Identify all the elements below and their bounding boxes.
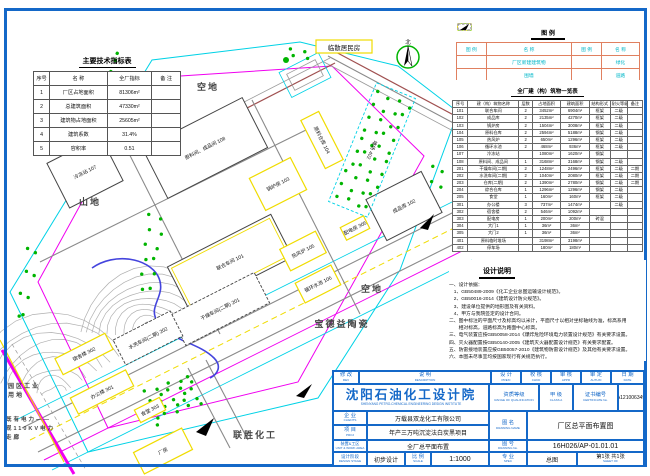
table-cell: 仓库(二期) (468, 180, 519, 187)
tree-dot (439, 185, 443, 189)
table-cell: 2 (519, 129, 532, 136)
table-cell: 1 (519, 158, 532, 165)
table-cell: 原料仓库 (468, 129, 519, 136)
gate-arrow-icon (196, 418, 214, 436)
table-cell: 二期 (627, 172, 642, 179)
checker-label: 校 核CHKD (521, 371, 551, 384)
table-cell: 3198m² (532, 237, 561, 244)
table-row: 205食堂1160m²160m²框架二级 (453, 194, 643, 201)
tree-dot (391, 138, 395, 142)
table-row: 104原料仓库22594m²5188m²钢架二级 (453, 129, 643, 136)
tree-dot (171, 398, 175, 402)
table-cell: 105 (453, 136, 468, 143)
tree-dot (397, 99, 401, 103)
table-cell (610, 151, 627, 158)
table-row: 402停车场180m²180m² (453, 244, 643, 251)
design-note-line: 1、GB50489-2009《化工企业总图运输设计规范》。 (449, 289, 646, 296)
table-cell: 1 (519, 194, 532, 201)
table-cell: 框架 (589, 115, 610, 122)
table-cell: 2 (519, 165, 532, 172)
building: 水洗车间(二期) 202 (113, 311, 183, 365)
rev-label: 修 改REV (333, 371, 359, 384)
table-cell: 2135m² (532, 115, 561, 122)
tree-dot (141, 287, 145, 291)
table-row: 厂区新建建筑物绿化 (457, 56, 640, 69)
tree-dot (155, 387, 159, 391)
scale-label: 比 例SCALE (405, 452, 431, 466)
table-cell (152, 128, 181, 142)
tree-dot (360, 136, 364, 140)
indicators-table: 序号名 称全厂指标备 注1厂区占地面积81306m²2总建筑面积47330m²3… (33, 71, 181, 156)
certificate-number: A121006349 (618, 384, 644, 411)
table-cell (627, 230, 642, 237)
unit-label: 装置&工区UNIT & WORK AREA (333, 440, 367, 452)
table-cell: 468m² (532, 144, 561, 151)
design-note-line: 六、本图未尽事宜均按国家现行有关规范执行。 (449, 354, 646, 361)
table-cell (610, 216, 627, 223)
table-cell: 4270m² (561, 115, 590, 122)
area-label: 联胜化工 (233, 429, 277, 440)
speciality-value: 总图 (527, 452, 577, 466)
table-cell: 160m² (561, 194, 590, 201)
tree-dot (303, 50, 306, 53)
table-cell: 1 (519, 230, 532, 237)
table-cell: 101 (453, 108, 468, 115)
tree-dot (374, 130, 378, 134)
table-cell: 框架 (589, 136, 610, 143)
table-cell (627, 194, 642, 201)
table-cell: 302 (453, 208, 468, 215)
table-cell: 3168m² (532, 158, 561, 165)
table-cell: 名 称 (50, 72, 108, 86)
tree-dot (18, 291, 22, 295)
gate-arrow-icon (296, 384, 312, 398)
table-cell: 102 (453, 115, 468, 122)
legend-header: 图 例 (457, 43, 487, 56)
drawing-number-value: 16H026/AP-01.01.01 (527, 440, 644, 452)
table-cell: 原料间、成品间 (468, 158, 519, 165)
tree-dot (283, 57, 289, 63)
drawing-sheet: 冷冻站 107原料间、成品间 108锅炉房 103原料仓库 104成品库 102… (0, 0, 650, 476)
table-cell: 2 (519, 208, 532, 215)
tree-dot (148, 286, 152, 290)
tree-dot (371, 102, 375, 106)
table-cell: 框架 (589, 108, 610, 115)
sheet-number: 第1张 共1张SHEET OF (577, 452, 644, 466)
table-cell: 2080m² (561, 172, 590, 179)
tree-cluster (136, 212, 165, 292)
table-cell: 0.51 (107, 142, 152, 156)
table-cell (610, 230, 627, 237)
tree-dot (358, 163, 362, 167)
table-cell: 103 (453, 122, 468, 129)
table-cell: 204 (453, 187, 468, 194)
table-cell: 热风炉 (468, 136, 519, 143)
table-cell: 钢架 (589, 180, 610, 187)
tree-dot (186, 403, 190, 407)
table-cell: 干燥车间(二期) (468, 165, 519, 172)
table-row: 序号名 称全厂指标备 注 (34, 72, 181, 86)
table-cell: 107 (453, 151, 468, 158)
table-cell (589, 201, 610, 208)
tree-dot (362, 128, 366, 132)
table-cell: 水洗车间(二期) (468, 172, 519, 179)
tree-dot (159, 392, 163, 396)
table-cell: 二级 (610, 158, 627, 165)
table-cell: 大门2 (468, 230, 519, 237)
table-cell: 钢架 (589, 187, 610, 194)
table-cell: 936m² (561, 144, 590, 151)
table-cell (627, 129, 642, 136)
table-cell: 容积率 (50, 142, 108, 156)
table-cell: 二级 (610, 172, 627, 179)
table-cell (627, 158, 642, 165)
table-cell (152, 114, 181, 128)
table-cell: 36m² (561, 230, 590, 237)
north-arrow-icon: 北 (397, 38, 419, 68)
tree-dot (147, 212, 151, 216)
table-row: 4建筑系数31.4% (34, 128, 181, 142)
design-notes-title: 设计说明 (479, 266, 515, 279)
contour-line (42, 385, 67, 394)
certificate-label: 证书编号CERTIFICATE No. (573, 384, 618, 411)
building-label: 堆场 402 (365, 139, 379, 160)
table-cell: 钢架 (589, 129, 610, 136)
table-cell (152, 142, 181, 156)
project-label: 项 目PROJ (333, 425, 367, 440)
tree-dot (357, 204, 361, 208)
tree-dot (381, 109, 385, 113)
table-cell: 202 (453, 172, 468, 179)
table-row: 303配电房1200m²200m²砖混 (453, 216, 643, 223)
table-cell: 二级 (610, 194, 627, 201)
designer-label: 设 计PRE'D (491, 371, 521, 384)
table-cell: 200m² (532, 216, 561, 223)
tree-dot (362, 150, 366, 154)
table-row: 204综合仓库11296m²1296m²钢架二级 (453, 187, 643, 194)
legend-header: 图 例 (572, 43, 602, 56)
tree-dot (182, 391, 186, 395)
area-label: 园区工业 (8, 382, 40, 390)
building: 循环水池 106 (295, 265, 341, 303)
table-row: 201干燥车间(二期)21248m²2496m²框架二级二期 (453, 165, 643, 172)
table-cell: 二级 (610, 136, 627, 143)
tree-dot (349, 188, 353, 192)
tree-dot (32, 274, 36, 278)
table-cell: 办公楼 (468, 201, 519, 208)
new-building-icon (457, 56, 487, 69)
table-cell: 2 (519, 122, 532, 129)
table-cell: 1474m² (561, 201, 590, 208)
table-cell: 2496m² (561, 165, 590, 172)
tree-dot (144, 258, 148, 262)
table-cell: 序号 (453, 101, 468, 108)
tree-dot (361, 191, 365, 195)
tree-dot (380, 172, 384, 176)
tree-dot (24, 269, 28, 273)
tree-dot (26, 246, 30, 250)
tree-dot (381, 131, 385, 135)
indicators-table-block: 主要技术指标表 序号名 称全厂指标备 注1厂区占地面积81306m²2总建筑面积… (33, 50, 181, 156)
legend-name: 厂区新建建筑物 (486, 56, 572, 69)
institute-name: 沈阳石油化工设计院SHENYANG PETRO-CHEMICAL ENGINEE… (333, 384, 489, 411)
table-cell (519, 151, 532, 158)
table-cell: 160m² (532, 194, 561, 201)
date-label: 日 期DATE (611, 371, 644, 384)
unit-value: 全厂总平面布置 (367, 440, 489, 452)
table-cell: 二级 (610, 122, 627, 129)
tree-dot (155, 247, 159, 251)
table-cell: 食堂 (468, 194, 519, 201)
table-cell: 36m² (532, 230, 561, 237)
table-cell: 3 (519, 201, 532, 208)
approver-label: 审 核APPR (551, 371, 581, 384)
table-cell (610, 208, 627, 215)
design-note-line: 相对标高，道路标高为路面中心标高。 (449, 325, 646, 332)
area-label: 既有电力—— (6, 415, 51, 423)
drawing-name-label: 图 名DRAWING NAME (489, 411, 527, 440)
tree-dot (339, 181, 343, 185)
table-row: 3建筑物占地面积25605m² (34, 114, 181, 128)
table-cell (627, 108, 642, 115)
table-cell (589, 208, 610, 215)
tree-dot (346, 197, 350, 201)
table-cell: 备 注 (152, 72, 181, 86)
table-cell: 200m² (561, 216, 590, 223)
table-cell: 钢架 (589, 158, 610, 165)
design-note-line: 一、设计依据： (449, 282, 646, 289)
table-cell: 框架 (589, 194, 610, 201)
table-cell: 6904m² (561, 108, 590, 115)
authorizer-label: 审 定AUTH'D (581, 371, 611, 384)
table-cell: 二级 (610, 108, 627, 115)
table-cell: 框架 (589, 144, 610, 151)
tree-dot (292, 54, 295, 57)
table-cell: 全厂指标 (107, 72, 152, 86)
table-row: 304大门1136m²36m² (453, 223, 643, 230)
table-row: 图 例名 称图 例名 称 (457, 43, 640, 56)
building: 原料仓库 104 (301, 111, 343, 168)
table-cell: 2 (519, 108, 532, 115)
table-row: 1厂区占地面积81306m² (34, 86, 181, 100)
tree-dot (26, 296, 30, 300)
table-cell: 建筑面积 (561, 101, 590, 108)
table-cell: 1 (519, 187, 532, 194)
table-row: 301办公楼3737m²1474m²二级 (453, 201, 643, 208)
table-cell: 2 (519, 136, 532, 143)
table-row: 5容积率0.51 (34, 142, 181, 156)
tree-dot (355, 149, 359, 153)
design-note-line: 四、灭火器配置按GB50140-2005《建筑灭火器配置设计规范》有关要求配置。 (449, 340, 646, 347)
table-cell: 2 (519, 115, 532, 122)
tree-dot (354, 176, 358, 180)
table-cell (610, 237, 627, 244)
scale-value: 1:1000 (431, 452, 489, 466)
table-cell: 宿舍楼 (468, 208, 519, 215)
table-cell: 1296m² (532, 187, 561, 194)
table-cell: 冷冻站 (468, 151, 519, 158)
table-cell: 3198m² (561, 237, 590, 244)
tree-dot (351, 162, 355, 166)
table-cell: 序号 (34, 72, 50, 86)
building: 厂房 (133, 428, 192, 474)
table-cell (627, 136, 642, 143)
buildings-table-title: 全厂建（构）筑物一览表 (511, 87, 584, 97)
table-cell (589, 237, 610, 244)
table-cell: 180m² (561, 244, 590, 251)
table-cell: 二级 (610, 115, 627, 122)
table-cell: 81306m² (107, 86, 152, 100)
design-note-line: 4、甲方与我院签定的设计合同。 (449, 311, 646, 318)
speciality-label: 专 业SPEC (489, 452, 527, 466)
table-cell: 3452m² (532, 108, 561, 115)
table-cell: 二级 (610, 187, 627, 194)
table-cell: 二级 (610, 201, 627, 208)
table-cell: 大门1 (468, 223, 519, 230)
table-cell (589, 244, 610, 251)
table-cell: 二级 (610, 144, 627, 151)
table-cell: 205 (453, 194, 468, 201)
design-note-line: 3、建设单位提供的地形图及有关资料。 (449, 304, 646, 311)
tree-dot (159, 232, 163, 236)
table-cell: 36m² (561, 223, 590, 230)
table-row: 105热风炉2650m²1296m²框架二级 (453, 136, 643, 143)
tree-dot (393, 112, 397, 116)
table-cell: 1296m² (561, 187, 590, 194)
table-row: 102成品库22135m²4270m²框架二级 (453, 115, 643, 122)
table-cell: 原料临时堆场 (468, 237, 519, 244)
table-cell: 总建筑面积 (50, 100, 108, 114)
legend-header: 名 称 (486, 43, 572, 56)
table-cell: 建（构）筑物名称 (468, 101, 519, 108)
table-cell: 3168m² (561, 158, 590, 165)
table-cell: 47330m² (107, 100, 152, 114)
table-cell: 737m² (532, 201, 561, 208)
table-cell (152, 86, 181, 100)
tree-dot (365, 178, 369, 182)
table-cell: 201 (453, 165, 468, 172)
tree-dot (142, 389, 146, 393)
table-cell (152, 100, 181, 114)
table-cell: 546m² (532, 208, 561, 215)
clients-value: 万载县双龙化工有限公司 (367, 411, 489, 425)
tree-cluster (142, 372, 205, 427)
title-block: 修 改REV 说 明DESCRIPTION 设 计PRE'D 校 核CHKD 审… (333, 371, 644, 466)
design-note-line: 三、电气装置应按GB50058-2014《爆炸危险环境电力装置设计规范》有关要求… (449, 332, 646, 339)
tree-dot (364, 204, 368, 208)
buildings-table-block: 全厂建（构）筑物一览表 序号建（构）筑物名称层数占地面积建筑面积结构形式耐火等级… (452, 80, 643, 252)
building: 热风炉 105 (280, 231, 327, 271)
table-cell: 框架 (589, 165, 610, 172)
contour-line (37, 375, 71, 393)
design-note-line: 五、防雷接地装置应按GB50057-2010《建筑物防雷设计规范》及其他有关要求… (449, 347, 646, 354)
tree-dot (387, 151, 391, 155)
table-cell (519, 244, 532, 251)
table-cell: 二级 (610, 129, 627, 136)
design-notes-lines: 一、设计依据： 1、GB50489-2009《化工企业总图运输设计规范》。 2、… (449, 282, 646, 361)
design-notes-block: 设计说明 一、设计依据： 1、GB50489-2009《化工企业总图运输设计规范… (449, 260, 646, 361)
table-cell: 1504m² (532, 122, 561, 129)
class-label: 甲 级CLASS A (539, 384, 573, 411)
tree-dot (335, 194, 339, 198)
table-cell (627, 208, 642, 215)
tree-dot (306, 57, 309, 60)
tree-dot (289, 47, 292, 50)
tree-dot (148, 228, 152, 232)
table-cell: 循环水池 (468, 144, 519, 151)
building: 办公楼 301 (70, 370, 133, 414)
drawing-number-label: 图 号DRAWING No. (489, 440, 527, 452)
legend-title: 图 例 (531, 28, 565, 40)
tree-dot (368, 192, 372, 196)
table-cell: 5 (34, 142, 50, 156)
table-cell (627, 122, 642, 129)
table-row: 序号建（构）筑物名称层数占地面积建筑面积结构形式耐火等级备注 (453, 101, 643, 108)
table-cell: 2 (34, 100, 50, 114)
table-cell (627, 115, 642, 122)
table-row: 103锅炉房21504m²3008m²框架二级 (453, 122, 643, 129)
table-cell: 305 (453, 230, 468, 237)
table-cell: 4 (34, 128, 50, 142)
tree-dot (182, 398, 186, 402)
table-cell: 2594m² (532, 129, 561, 136)
table-cell: 401 (453, 237, 468, 244)
table-cell: 结构形式 (589, 101, 610, 108)
table-cell (519, 237, 532, 244)
tree-dot (384, 159, 388, 163)
design-note-line: 二、图中标注的平面尺寸及标高均以米计，平面尺寸以相对坐标轴线为准，标高系用 (449, 318, 646, 325)
table-cell: 砖混 (589, 216, 610, 223)
qualification-label: 资质等级RANGE OF QUALIFICATION (489, 384, 539, 411)
building: 配电房 305 (340, 216, 370, 240)
area-label: 现110KV电力 (6, 424, 55, 432)
table-cell (610, 244, 627, 251)
table-cell: 二级 (610, 165, 627, 172)
table-cell: 104 (453, 129, 468, 136)
table-cell (627, 187, 642, 194)
tree-dot (166, 381, 170, 385)
legend-header: 名 称 (601, 43, 639, 56)
table-cell: 停车场 (468, 244, 519, 251)
table-cell: 25605m² (107, 114, 152, 128)
table-cell: 2 (519, 172, 532, 179)
stage-label: 设计阶段DESIGN STAGE (333, 452, 367, 466)
buildings-table: 序号建（构）筑物名称层数占地面积建筑面积结构形式耐火等级备注101联合车间234… (452, 100, 643, 252)
table-cell: 1390m² (532, 180, 561, 187)
tree-dot (344, 168, 348, 172)
tree-dot (152, 257, 156, 261)
table-cell: 备注 (627, 101, 642, 108)
table-cell (627, 144, 642, 151)
tree-cluster (289, 47, 310, 60)
table-cell: 303 (453, 216, 468, 223)
greenery-icon (572, 56, 602, 69)
table-row: 2总建筑面积47330m² (34, 100, 181, 114)
tree-dot (400, 112, 404, 116)
table-cell: 2 (519, 180, 532, 187)
table-cell: 3008m² (561, 122, 590, 129)
tree-dot (175, 410, 179, 414)
table-cell: 锅炉房 (468, 122, 519, 129)
table-cell: 层数 (519, 101, 532, 108)
table-cell: 1 (519, 223, 532, 230)
north-label: 北 (405, 38, 411, 46)
table-cell: 成品库 (468, 115, 519, 122)
table-cell: 框架 (589, 122, 610, 129)
table-cell (627, 237, 642, 244)
tree-dot (189, 380, 193, 384)
area-label: 用地 (7, 391, 24, 399)
